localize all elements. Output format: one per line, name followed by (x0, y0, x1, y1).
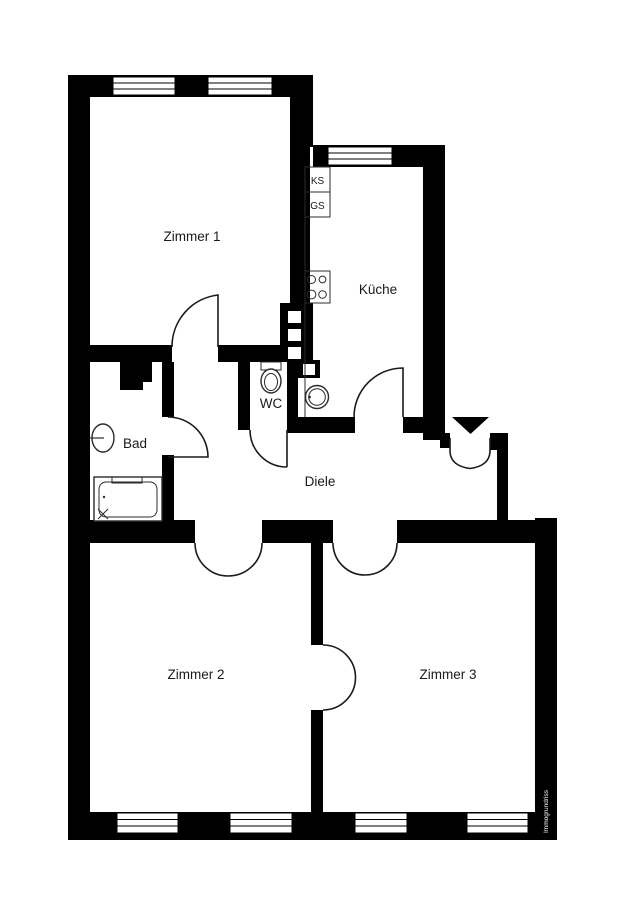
vent-opening-3 (288, 347, 301, 359)
window-zimmer2-left (117, 813, 178, 833)
wall-top-zimmer1 (68, 75, 313, 97)
burner (319, 276, 326, 283)
vent-opening-2 (288, 329, 301, 341)
bath-sink-icon (90, 424, 114, 452)
room-label-kueche: Küche (359, 282, 397, 297)
wall-wc-door-jamb (238, 417, 250, 430)
wall-zimmer1-kueche (290, 97, 310, 303)
wall-zimmer2-3-upper (311, 543, 323, 645)
wall-entrance-right-jamb (490, 433, 508, 450)
window-frame (355, 813, 407, 833)
room-label-zimmer3: Zimmer 3 (420, 667, 477, 682)
dishwasher-label: GS (310, 201, 325, 212)
window-frame (113, 77, 175, 95)
door-bad (168, 417, 208, 457)
window-frame (117, 813, 178, 833)
fridge-label: KS (311, 176, 325, 187)
wall-zimmer1-south-a (90, 345, 172, 362)
wall-diele-south-a (90, 520, 195, 543)
wall-wc-right (287, 362, 298, 417)
kitchen-sink-icon (306, 386, 329, 409)
window-frame (230, 813, 292, 833)
wall-left (68, 75, 90, 840)
wall-diele-south-c (397, 520, 557, 543)
room-label-zimmer1: Zimmer 1 (164, 229, 221, 244)
wall-kueche-south-b (403, 417, 445, 433)
entrance-arrow-icon (452, 417, 489, 434)
floor-plan-canvas: KS GS (0, 0, 635, 900)
room-label-bad: Bad (123, 436, 147, 451)
room-label-wc: WC (260, 396, 283, 411)
wall-bad-right-lower (162, 455, 174, 523)
door-zimmer3-double (333, 543, 397, 575)
tub-drain-dot (103, 496, 105, 498)
window-zimmer2-right (230, 813, 292, 833)
burner (319, 291, 327, 299)
door-zimmer1 (172, 295, 218, 347)
door-entrance (450, 438, 490, 469)
window-zimmer1-right (208, 77, 272, 95)
wall-diele-south-b (262, 520, 333, 543)
wall-right-kueche (423, 145, 445, 440)
window-kueche (328, 147, 392, 165)
wall-kueche-south-a (287, 417, 355, 433)
tub-outer (94, 477, 162, 521)
window-frame (467, 813, 528, 833)
sink-tap (308, 396, 311, 399)
wall-entrance-left-jamb (440, 433, 450, 448)
window-frame (208, 77, 272, 95)
vent-opening-1 (288, 311, 301, 323)
toilet-icon (261, 362, 281, 393)
toilet-bowl (261, 369, 281, 393)
wall-zimmer2-3-lower (311, 710, 323, 812)
room-label-diele: Diele (305, 474, 336, 489)
window-zimmer3-right (467, 813, 528, 833)
floor-plan: KS GS (0, 0, 635, 900)
wall-entrance-side (497, 448, 508, 523)
wall-bad-niche-b (138, 360, 152, 382)
watermark-text: Immogrundriss (543, 789, 550, 833)
walls (68, 75, 557, 840)
door-zimmer2-double (195, 543, 262, 576)
door-zimmer2-zimmer3-double (323, 645, 356, 710)
window-zimmer1-left (113, 77, 175, 95)
window-zimmer3-left (355, 813, 407, 833)
wall-wc-left (238, 362, 250, 417)
door-wc (250, 430, 287, 467)
wall-bad-right-upper (162, 362, 174, 417)
door-kueche (354, 368, 403, 417)
window-frame (328, 147, 392, 165)
bathtub-icon (94, 477, 162, 521)
room-label-zimmer2: Zimmer 2 (168, 667, 225, 682)
